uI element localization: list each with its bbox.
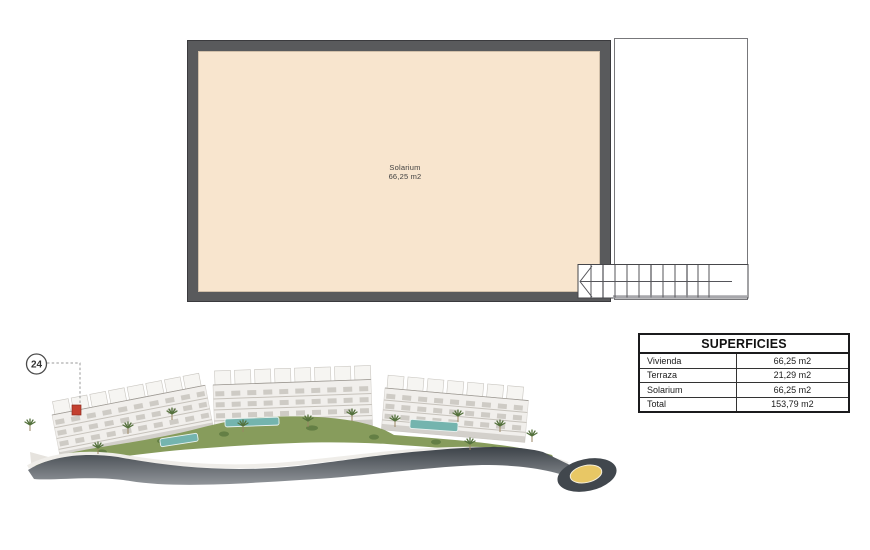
room-area: 66,25 m2 xyxy=(389,172,422,181)
row-label: Solarium xyxy=(640,383,737,397)
staircase-diagram xyxy=(577,264,749,299)
palm-tree-icon xyxy=(25,419,35,431)
room-name: Solarium xyxy=(389,163,422,172)
floorplan-outer-wall: Solarium 66,25 m2 xyxy=(187,40,611,302)
row-label: Total xyxy=(640,398,737,412)
row-label: Vivienda xyxy=(640,354,737,368)
roundabout xyxy=(554,453,619,497)
unit-badge-number: 24 xyxy=(31,360,43,371)
table-row: Vivienda 66,25 m2 xyxy=(640,354,848,369)
row-value: 21,29 m2 xyxy=(737,369,848,383)
palm-tree-icon xyxy=(527,430,537,442)
row-value: 66,25 m2 xyxy=(737,383,848,397)
superficies-table: SUPERFICIES Vivienda 66,25 m2 Terraza 21… xyxy=(638,333,850,413)
table-row: Total 153,79 m2 xyxy=(640,398,848,412)
row-value: 66,25 m2 xyxy=(737,354,848,368)
row-value: 153,79 m2 xyxy=(737,398,848,412)
table-title: SUPERFICIES xyxy=(640,335,848,354)
table-row: Terraza 21,29 m2 xyxy=(640,369,848,384)
complex-aerial-render: 24 xyxy=(12,348,632,528)
brochure-page: Solarium 66,25 m2 SUPERFICIES Viviend xyxy=(0,0,870,550)
solarium-floor-area: Solarium 66,25 m2 xyxy=(198,51,600,292)
row-label: Terraza xyxy=(640,369,737,383)
unit-24-marker xyxy=(72,405,81,415)
room-label: Solarium 66,25 m2 xyxy=(389,163,422,181)
pool xyxy=(225,417,279,427)
building-block-right xyxy=(381,375,529,442)
floorplan-terrace-outline xyxy=(614,38,748,300)
table-row: Solarium 66,25 m2 xyxy=(640,383,848,398)
